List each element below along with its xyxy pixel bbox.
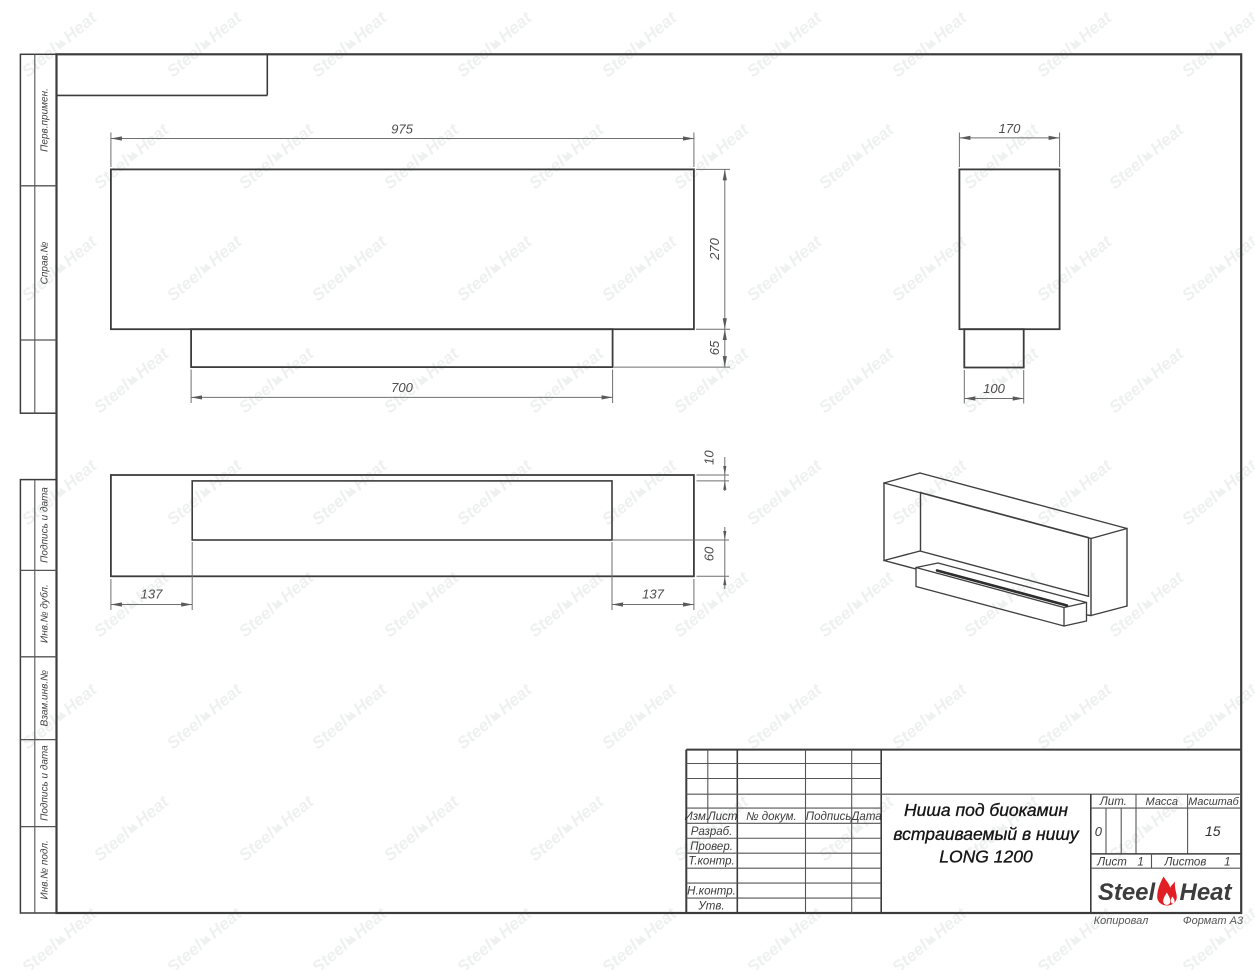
svg-text:Инв.№ подл.: Инв.№ подл.: [40, 840, 51, 899]
svg-text:Масштаб: Масштаб: [1188, 796, 1239, 808]
svg-text:1: 1: [1224, 856, 1230, 868]
svg-text:Steel: Steel: [1098, 879, 1157, 906]
svg-text:Справ.№: Справ.№: [40, 241, 51, 284]
svg-text:Подпись и дата: Подпись и дата: [40, 487, 51, 563]
svg-text:Дата: Дата: [849, 811, 881, 823]
svg-text:60: 60: [702, 546, 717, 561]
svg-text:LONG 1200: LONG 1200: [939, 847, 1033, 867]
svg-text:65: 65: [707, 340, 722, 355]
svg-text:Провер.: Провер.: [690, 841, 733, 853]
svg-text:Н.контр.: Н.контр.: [687, 886, 736, 898]
svg-text:Изм.: Изм.: [685, 811, 710, 823]
svg-text:Листов: Листов: [1163, 856, 1206, 868]
svg-text:Подпись: Подпись: [806, 811, 852, 823]
svg-text:Heat: Heat: [1179, 879, 1232, 906]
svg-text:Масса: Масса: [1146, 796, 1179, 808]
svg-text:Взам.инв.№: Взам.инв.№: [40, 670, 51, 726]
svg-text:Копировал: Копировал: [1094, 915, 1149, 927]
svg-text:Инв.№ дубл.: Инв.№ дубл.: [39, 584, 51, 643]
svg-text:10: 10: [702, 450, 717, 465]
svg-text:700: 700: [391, 380, 413, 395]
svg-text:Утв.: Утв.: [697, 901, 724, 913]
svg-text:Разраб.: Разраб.: [691, 826, 733, 838]
svg-text:975: 975: [391, 122, 413, 137]
svg-text:270: 270: [707, 237, 722, 260]
svg-text:Подпись и дата: Подпись и дата: [40, 745, 51, 821]
svg-text:Ниша под биокамин: Ниша под биокамин: [904, 800, 1068, 820]
svg-text:170: 170: [999, 121, 1021, 136]
svg-text:137: 137: [141, 587, 163, 602]
svg-text:Перв.примен.: Перв.примен.: [40, 88, 51, 152]
svg-text:100: 100: [983, 381, 1005, 396]
svg-text:Т.контр.: Т.контр.: [688, 856, 734, 868]
svg-text:Лит.: Лит.: [1099, 796, 1127, 808]
svg-text:№ докум.: № докум.: [746, 811, 797, 823]
svg-text:встраиваемый в нишу: встраиваемый в нишу: [893, 824, 1079, 844]
svg-text:Лист: Лист: [707, 811, 738, 823]
svg-text:Формат А3: Формат А3: [1183, 915, 1244, 927]
svg-text:Лист: Лист: [1096, 856, 1127, 868]
svg-text:137: 137: [642, 587, 664, 602]
svg-text:1: 1: [1137, 856, 1143, 868]
svg-text:15: 15: [1205, 823, 1221, 839]
svg-text:0: 0: [1095, 824, 1103, 839]
